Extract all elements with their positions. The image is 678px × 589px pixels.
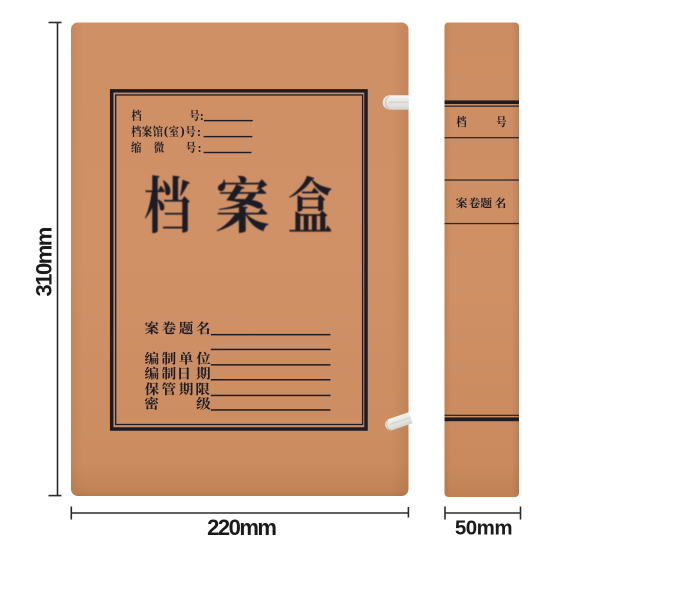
svg-text:220mm: 220mm — [207, 515, 276, 540]
svg-text::: : — [197, 125, 201, 139]
svg-text:(: ( — [164, 123, 168, 138]
svg-text:310mm: 310mm — [31, 227, 56, 296]
svg-text::: : — [200, 109, 204, 123]
svg-text:): ) — [180, 123, 184, 138]
svg-text::: : — [198, 141, 202, 155]
svg-text:50mm: 50mm — [455, 517, 512, 540]
